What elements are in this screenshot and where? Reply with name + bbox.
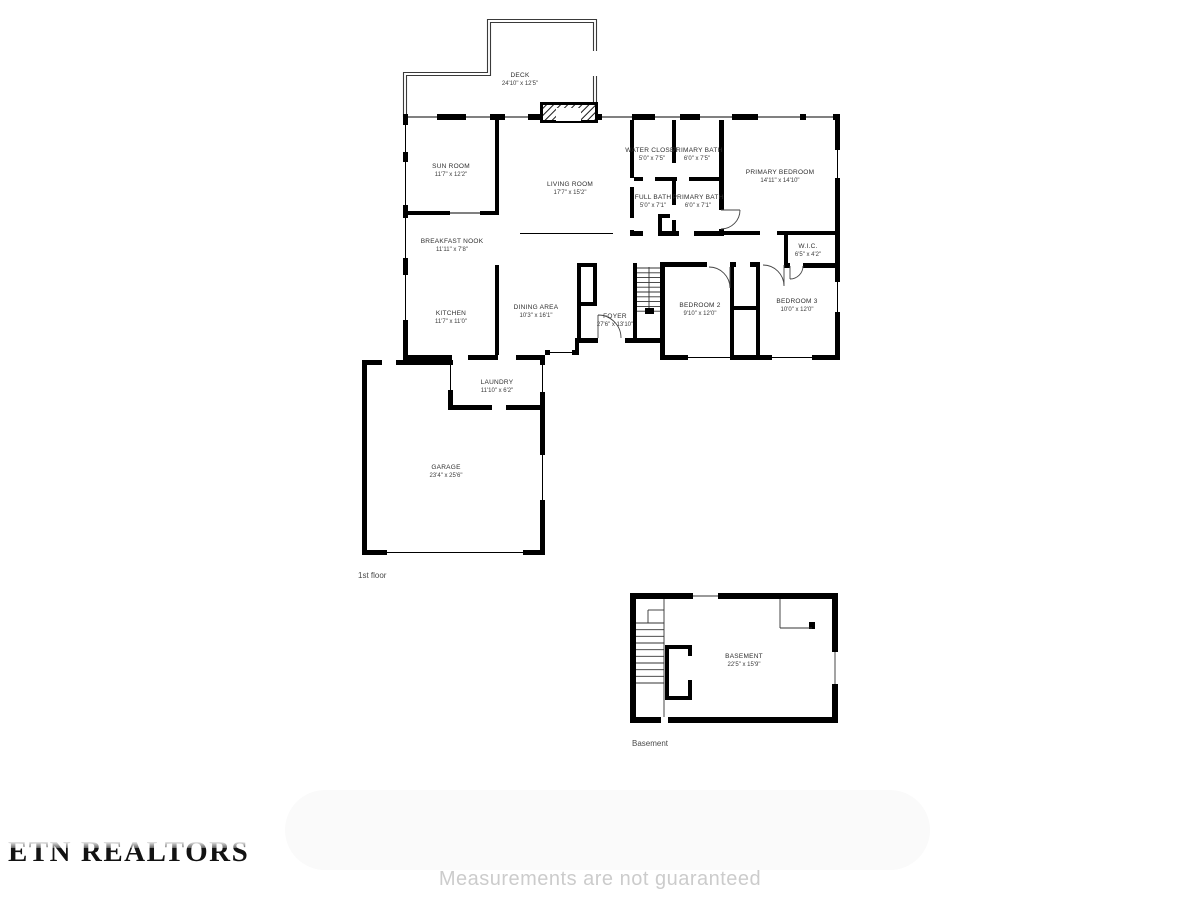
fireplace [540,102,598,123]
room-label-full-bath: FULL BATH 5'0" x 7'1" [635,193,672,211]
room-label-primary-bath-upper: PRIMARY BATH 6'0" x 7'5" [671,146,722,164]
caption-first-floor: 1st floor [358,571,386,580]
room-label-wic: W.I.C. 6'5" x 4'2" [795,242,821,260]
room-label-breakfast-nook: BREAKFAST NOOK 11'11" x 7'8" [421,237,484,255]
realtor-logo: ETN REALTORS [8,836,249,869]
floorplan-drawing [0,0,1200,900]
room-label-bedroom-2: BEDROOM 2 9'10" x 12'0" [679,301,720,319]
room-label-garage: GARAGE 23'4" x 25'6" [430,463,463,481]
room-label-living-room: LIVING ROOM 17'7" x 15'2" [547,180,593,198]
measurements-disclaimer: Measurements are not guaranteed [0,868,1200,891]
room-label-primary-bedroom: PRIMARY BEDROOM 14'11" x 14'10" [746,168,815,186]
floorplan-page: DECK 24'10" x 12'5" SUN ROOM 11'7" x 12'… [0,0,1200,900]
caption-basement: Basement [632,739,668,748]
room-label-kitchen: KITCHEN 11'7" x 11'0" [435,309,467,327]
room-label-sun-room: SUN ROOM 11'7" x 12'2" [432,162,470,180]
watermark-blob [285,790,930,870]
room-label-laundry: LAUNDRY 11'10" x 6'2" [481,378,514,396]
room-label-foyer: FOYER 27'6" x 13'10" [597,312,633,330]
room-label-bedroom-3: BEDROOM 3 10'0" x 12'0" [776,297,817,315]
stairs-first-floor [637,267,660,314]
room-label-deck: DECK 24'10" x 12'5" [502,71,538,89]
room-label-basement: BASEMENT 22'5" x 15'9" [725,652,763,670]
room-label-primary-bath-lower: PRIMARY BATH 6'0" x 7'1" [672,193,723,211]
room-label-dining-area: DINING AREA 10'3" x 16'1" [514,303,559,321]
